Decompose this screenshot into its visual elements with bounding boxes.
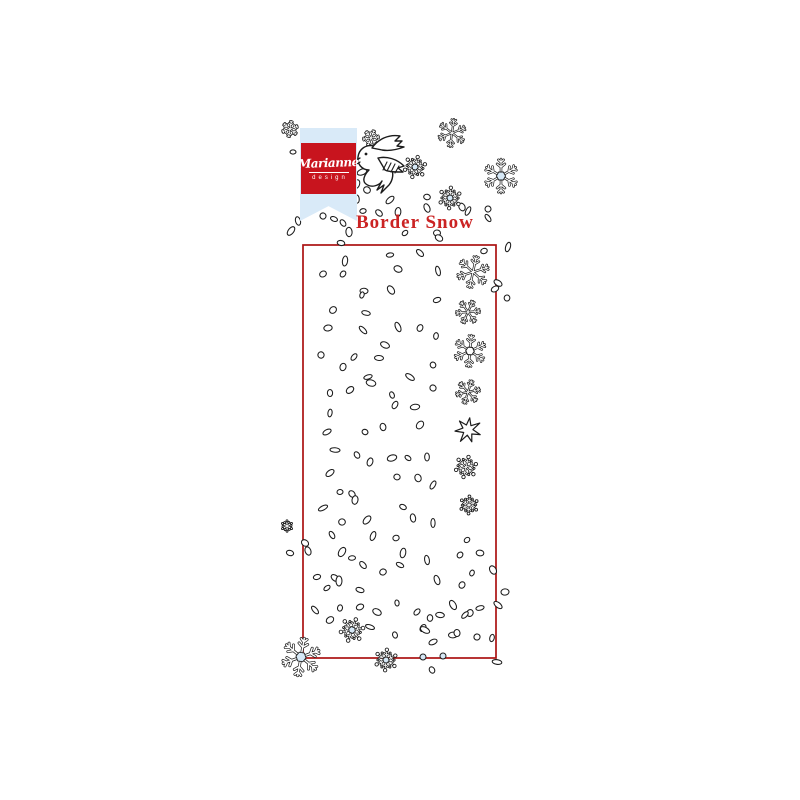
snowflake-icon — [453, 453, 479, 481]
snow-dot — [493, 600, 504, 610]
snow-dot — [492, 659, 502, 665]
snow-dot — [463, 536, 471, 543]
snow-dot — [429, 480, 437, 490]
snow-dot — [362, 186, 371, 195]
snow-dot — [361, 428, 369, 435]
snow-dot — [322, 428, 332, 436]
snow-dot — [290, 150, 296, 154]
snow-dot — [429, 361, 437, 369]
snowflake-icon — [337, 614, 368, 646]
snow-dot — [391, 400, 399, 409]
snow-dot — [410, 404, 420, 411]
snow-dot — [399, 503, 407, 510]
snowflake-icon — [282, 520, 293, 532]
snowflake-icon — [454, 377, 482, 407]
snow-dot — [393, 265, 403, 274]
snow-dot — [358, 325, 368, 335]
snow-dot — [473, 633, 482, 642]
snow-dot — [428, 638, 438, 646]
snow-dot — [348, 555, 355, 560]
snowflake-icon — [453, 297, 483, 328]
stamp-scene — [0, 0, 800, 800]
snow-dot — [429, 384, 438, 393]
snow-dot — [338, 519, 345, 526]
snow-dot — [469, 569, 475, 576]
snow-dot — [379, 568, 388, 576]
snow-dot — [323, 324, 332, 331]
snow-dot-blue — [440, 653, 446, 659]
snow-dot — [374, 355, 383, 360]
snowflake-icon — [454, 334, 486, 368]
snowflake-icon — [454, 416, 483, 444]
snow-dot — [328, 305, 338, 314]
snowflake-icon — [455, 253, 490, 290]
snow-dot — [286, 549, 294, 556]
snow-dot — [304, 546, 312, 556]
snow-dot — [369, 531, 377, 541]
snow-dot — [405, 372, 416, 382]
snow-dot — [458, 581, 466, 590]
snow-dot — [363, 374, 373, 381]
snow-dot — [366, 379, 377, 387]
snow-dot — [480, 247, 488, 254]
snow-dot — [339, 219, 347, 228]
snow-dot — [330, 447, 340, 452]
snow-dot — [355, 603, 364, 611]
snow-dot — [448, 599, 458, 611]
snow-dot — [404, 454, 412, 461]
brand-subname: design — [309, 175, 348, 181]
brand-logo: Marianne design — [301, 143, 356, 194]
snow-dot — [336, 576, 342, 586]
snow-dot — [325, 615, 335, 624]
snow-dot — [319, 270, 328, 278]
bird-eye — [365, 153, 368, 156]
snow-dot — [454, 629, 461, 637]
snow-dot — [433, 575, 441, 586]
snow-dot — [346, 227, 353, 237]
snowflake-icon — [374, 647, 397, 673]
snow-dot — [361, 310, 370, 316]
snow-dot — [355, 587, 364, 594]
snow-dot — [317, 351, 324, 359]
snow-dot — [433, 332, 439, 339]
snow-dot — [476, 550, 484, 556]
snow-dot — [435, 266, 442, 276]
snow-dot — [504, 242, 511, 253]
snow-dot — [393, 473, 401, 480]
snow-dot — [425, 453, 430, 461]
snowflake-icon — [281, 635, 321, 678]
snow-dot — [350, 353, 358, 362]
snow-dot — [337, 546, 348, 558]
snow-dot — [327, 389, 332, 396]
snow-dot — [386, 252, 394, 257]
snow-dot — [339, 270, 347, 278]
snowflake-icon — [402, 153, 429, 182]
snow-dot — [423, 194, 431, 201]
snowflake-icon — [438, 185, 461, 211]
snow-dot — [310, 605, 319, 615]
snow-dot — [379, 423, 386, 431]
snow-dot — [490, 285, 500, 293]
snow-dot — [419, 625, 430, 635]
brand-name: Marianne — [298, 155, 359, 170]
snow-dot — [431, 519, 435, 528]
snow-dot — [325, 468, 336, 478]
snow-dot — [456, 551, 464, 559]
snow-dot — [489, 634, 495, 642]
snow-dot — [372, 607, 383, 616]
snow-dot — [392, 631, 399, 639]
snow-dot — [362, 515, 373, 526]
snow-dot — [319, 212, 327, 220]
brand-rule — [309, 172, 349, 173]
snow-dot — [416, 324, 424, 333]
snow-dot — [328, 530, 336, 539]
snow-dot — [410, 513, 417, 522]
snow-dot — [353, 451, 361, 460]
snowflake-icon — [460, 495, 479, 516]
snow-dot — [433, 297, 442, 304]
snow-dot — [394, 600, 399, 607]
snowflake-icon — [437, 117, 466, 148]
snow-dot — [399, 548, 406, 559]
snow-dot — [318, 504, 329, 512]
snow-dot — [389, 391, 396, 399]
snow-dot — [427, 615, 433, 622]
snow-dot — [345, 385, 355, 395]
snow-dot — [394, 321, 403, 332]
snow-dot — [327, 409, 332, 417]
snow-dot — [313, 574, 321, 581]
snow-dot — [286, 225, 296, 236]
snow-dot — [424, 555, 430, 565]
snow-dot — [339, 363, 347, 372]
snow-dot — [414, 473, 423, 482]
snow-dot — [415, 420, 425, 431]
product-image: Marianne design Border Snow — [0, 0, 800, 800]
snow-dot-blue — [420, 654, 426, 660]
snow-dot — [380, 340, 391, 349]
snow-dot — [337, 489, 343, 495]
snowflake-icon — [486, 159, 517, 193]
snow-dot — [475, 605, 484, 611]
snow-dot — [413, 608, 421, 617]
snowflake-icon — [282, 120, 299, 138]
snow-dot — [428, 666, 436, 674]
snow-dot — [386, 284, 396, 295]
snow-dot — [395, 561, 404, 568]
snow-dot — [392, 535, 400, 542]
snow-dot — [504, 295, 510, 301]
product-title: Border Snow — [356, 212, 506, 234]
snow-dot — [342, 256, 348, 267]
snow-dot — [365, 624, 375, 631]
snow-dot — [300, 538, 310, 547]
snow-dot — [461, 611, 470, 620]
snow-dot — [337, 604, 343, 611]
bird-sketch — [353, 136, 404, 193]
snow-dot — [387, 454, 398, 463]
snow-dot — [366, 457, 374, 467]
snow-dot — [323, 584, 331, 592]
snow-dot — [358, 560, 367, 570]
snow-dot — [385, 195, 395, 205]
snow-dot — [435, 612, 444, 618]
snow-dot — [330, 216, 338, 223]
snow-dot — [501, 589, 509, 596]
snow-dot — [415, 248, 424, 257]
